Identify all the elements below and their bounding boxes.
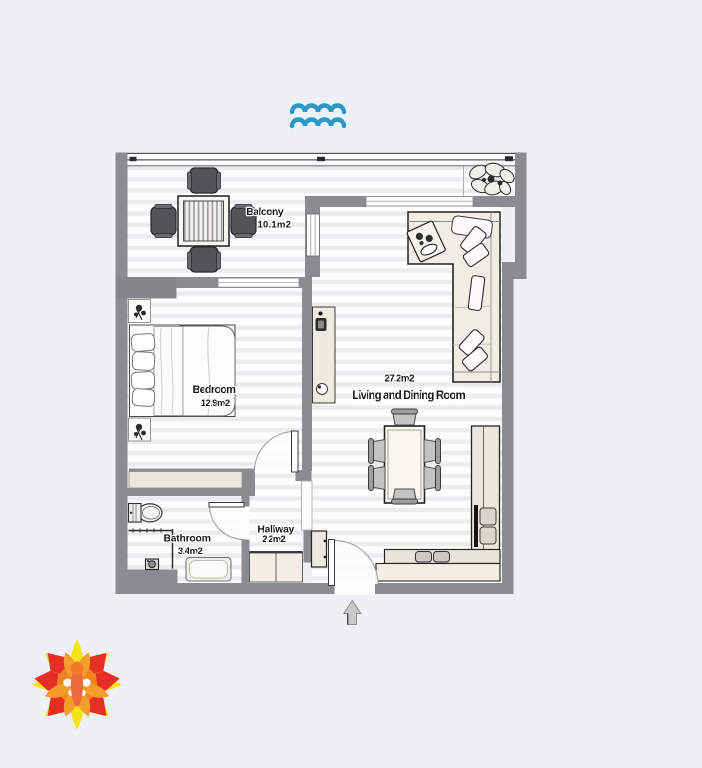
svg-text:Bathroom: Bathroom	[163, 532, 211, 544]
svg-text:3.4m2: 3.4m2	[178, 546, 203, 557]
svg-text:2.2m2: 2.2m2	[262, 534, 286, 545]
svg-text:12.9m2: 12.9m2	[201, 398, 231, 409]
svg-text:10.1m2: 10.1m2	[257, 219, 291, 230]
svg-text:27.2m2: 27.2m2	[385, 373, 415, 384]
svg-text:Bedroom: Bedroom	[192, 384, 236, 396]
svg-text:Balcony: Balcony	[246, 206, 284, 218]
svg-text:Living and Dining Room: Living and Dining Room	[352, 390, 466, 402]
